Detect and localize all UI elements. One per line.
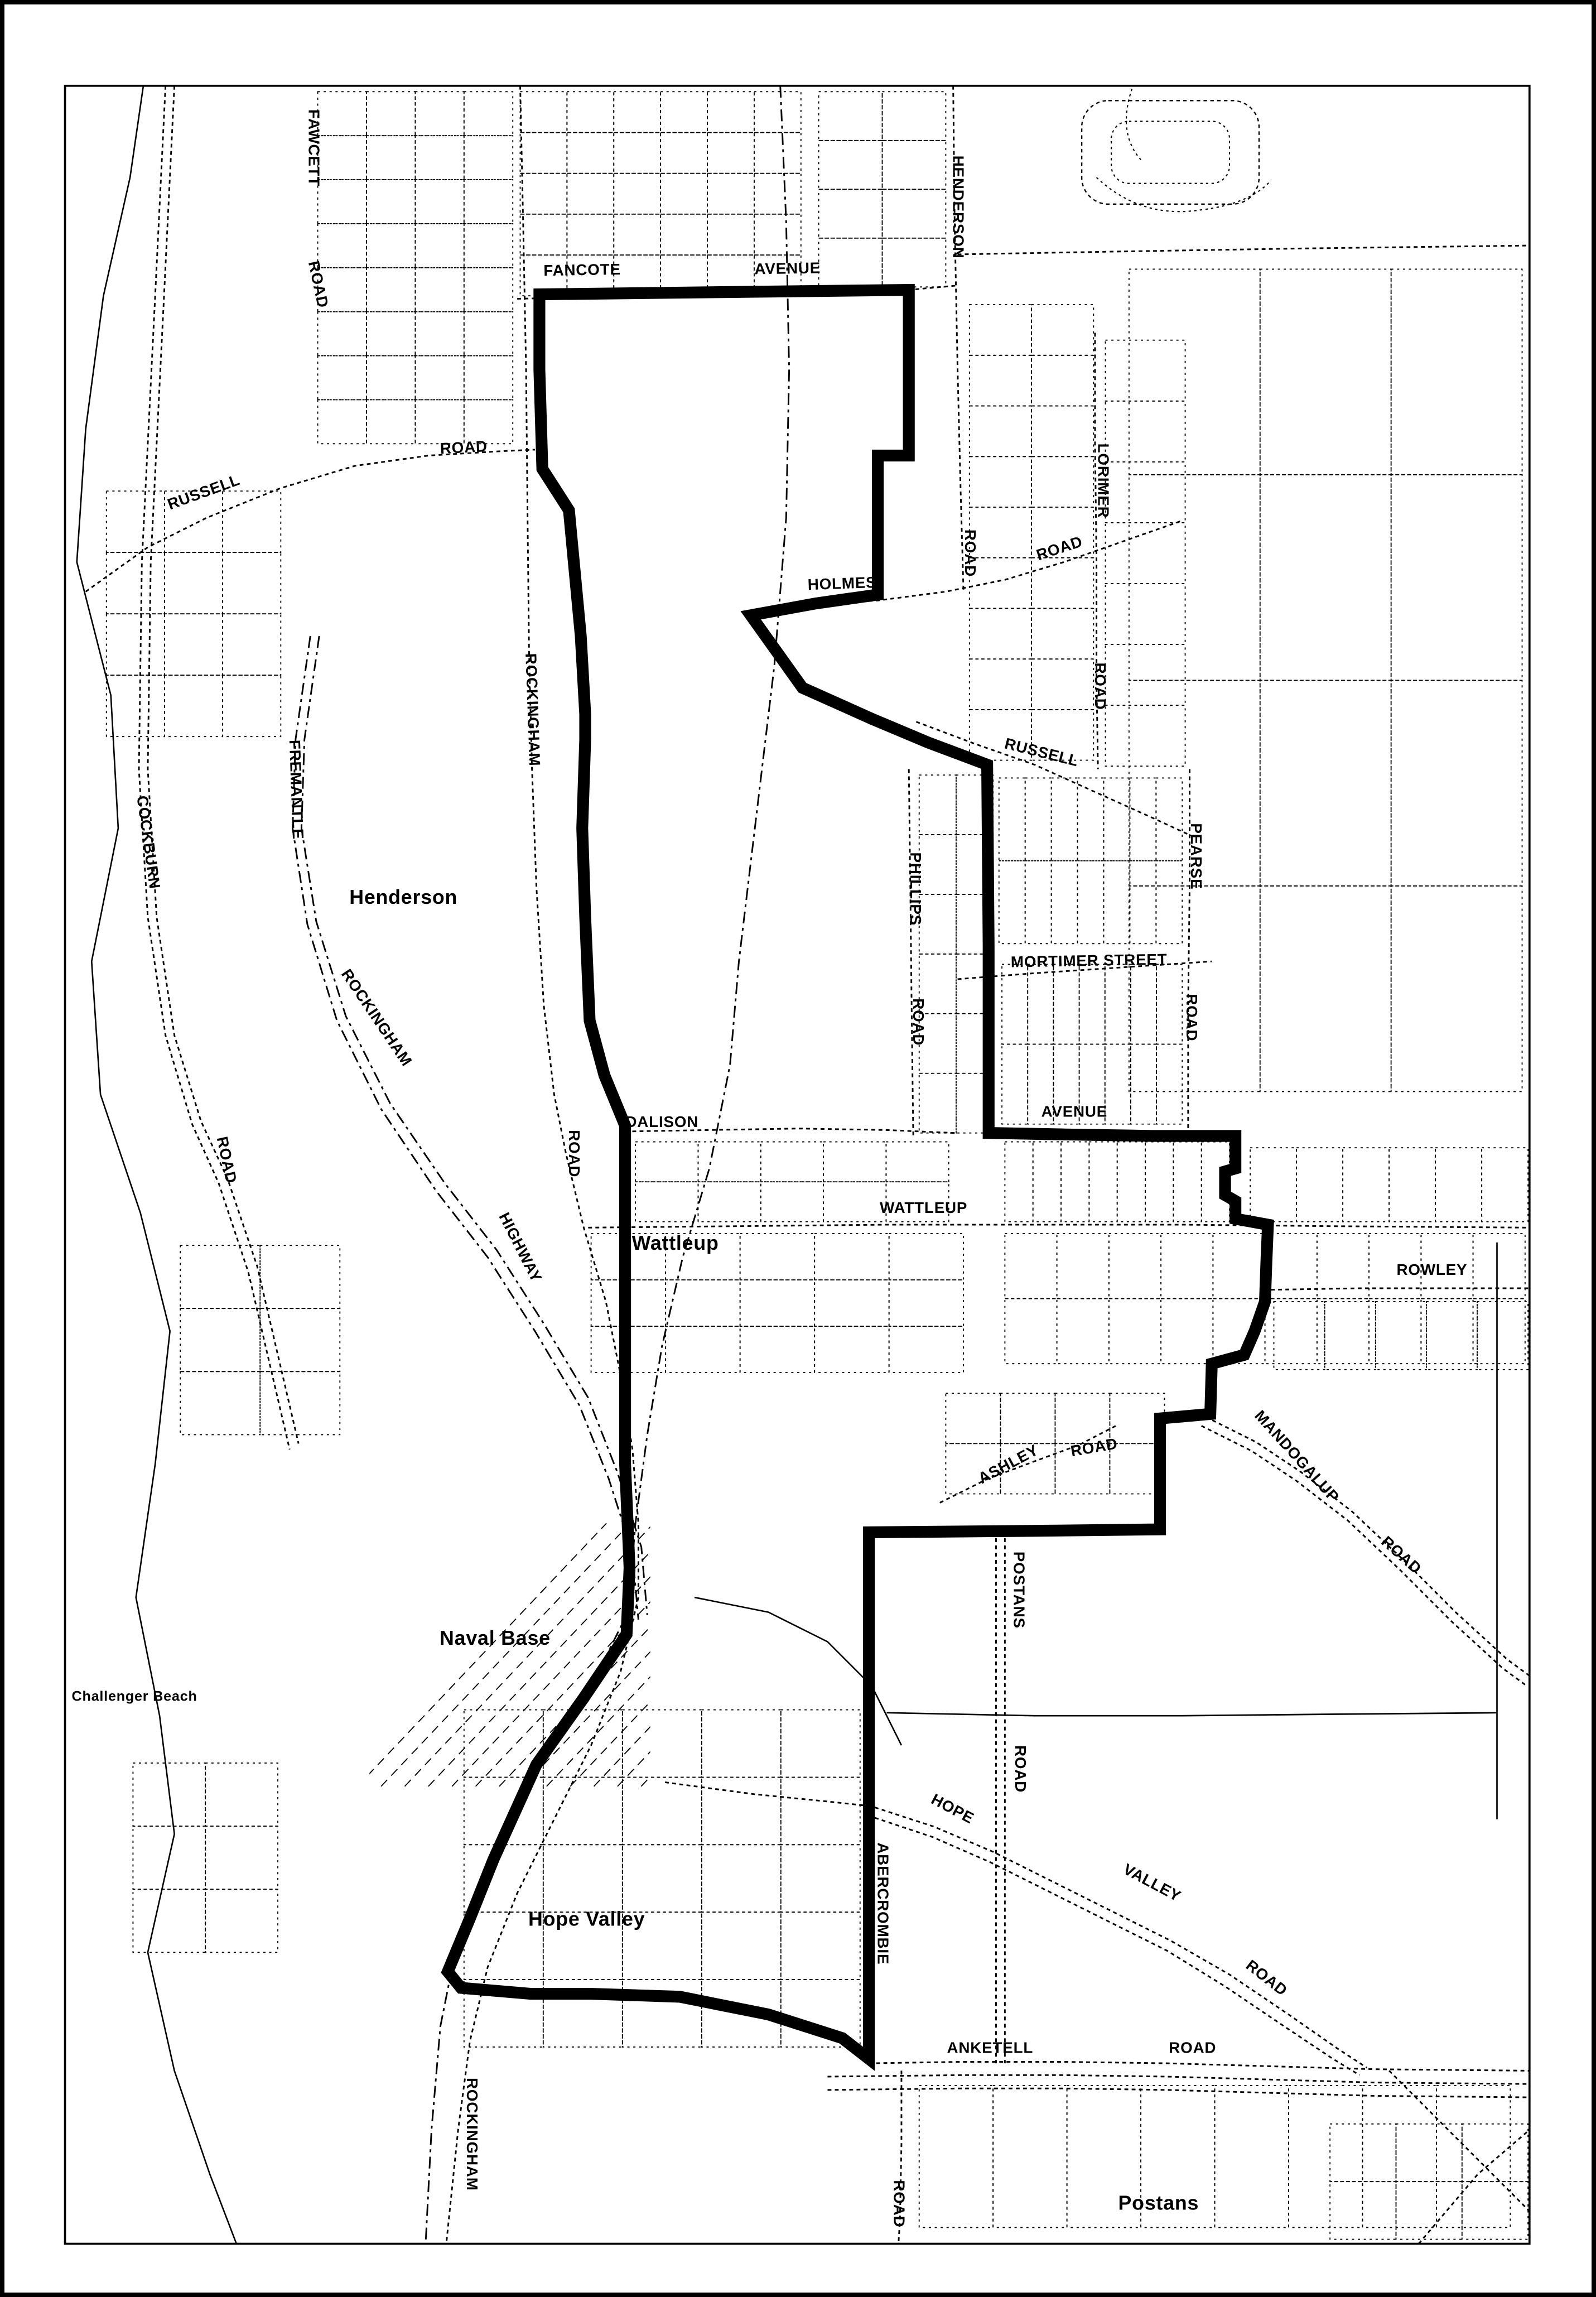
road-label-holmes: HOLMES: [807, 574, 877, 593]
road-label-postans: POSTANS: [1010, 1552, 1028, 1629]
road-label-road: ROAD: [566, 1130, 583, 1177]
road-label-abercrombie: ABERCROMBIE: [875, 1842, 892, 1964]
road-label-henderson: HENDERSON: [950, 156, 967, 259]
road-label-lorimer: LORIMER: [1094, 444, 1112, 518]
place-label-postans: Postans: [1118, 2192, 1199, 2214]
road-label-avenue: AVENUE: [1042, 1102, 1108, 1120]
road-label-road: ROAD: [1183, 994, 1200, 1041]
road-label-pearse: PEARSE: [1188, 823, 1205, 889]
place-label-wattleup: Wattleup: [632, 1232, 719, 1254]
scanned-map-page: FAWCETTROADFANCOTEAVENUEHENDERSONRUSSELL…: [0, 0, 1596, 2297]
road-label-rowley: ROWLEY: [1397, 1261, 1468, 1278]
road-label-avenue: AVENUE: [754, 259, 821, 277]
road-label-phillips: PHILLIPS: [907, 852, 924, 926]
place-label-hope-valley: Hope Valley: [528, 1908, 645, 1930]
map-canvas: FAWCETTROADFANCOTEAVENUEHENDERSONRUSSELL…: [0, 0, 1596, 2297]
place-label-challenger-beach: Challenger Beach: [71, 1689, 197, 1704]
place-label-henderson: Henderson: [349, 886, 457, 908]
road-label-dalison: DALISON: [625, 1113, 698, 1130]
road-label-fremantle: FREMANTLE: [286, 739, 307, 840]
road-label-road: ROAD: [1169, 2039, 1216, 2057]
road-label-road: ROAD: [1012, 1745, 1029, 1793]
road-label-wattleup: WATTLEUP: [880, 1199, 967, 1216]
place-label-naval-base: Naval Base: [440, 1627, 551, 1649]
road-label-road: ROAD: [440, 437, 488, 457]
road-label-mortimer-street: MORTIMER STREET: [1011, 951, 1168, 971]
road-label-road: ROAD: [891, 2180, 908, 2227]
road-label-road: ROAD: [1092, 663, 1109, 710]
road-label-road: ROAD: [910, 998, 927, 1046]
map-frame: [65, 86, 1530, 2244]
road-label-fancote: FANCOTE: [543, 261, 621, 279]
road-label-anketell: ANKETELL: [947, 2039, 1034, 2057]
road-label-fawcett: FAWCETT: [306, 109, 323, 186]
road-label-rockingham: ROCKINGHAM: [464, 2078, 481, 2191]
road-label-road: ROAD: [962, 529, 979, 577]
